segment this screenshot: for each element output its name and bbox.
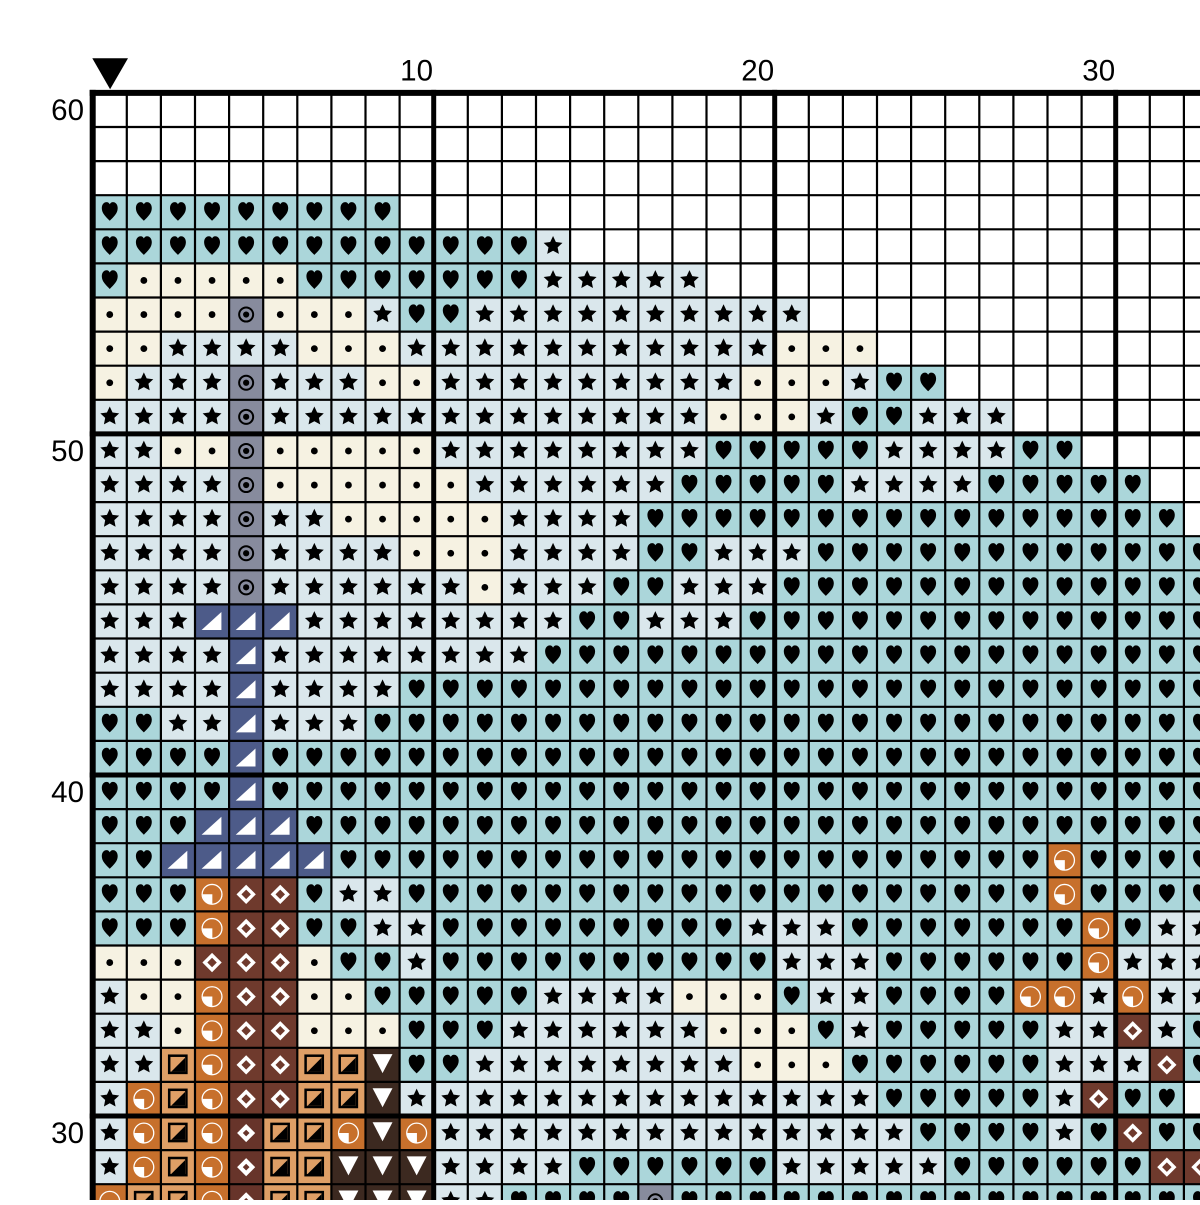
svg-text:60: 60 [51, 94, 84, 127]
svg-text:30: 30 [1082, 55, 1115, 88]
svg-text:20: 20 [741, 55, 774, 88]
svg-text:30: 30 [51, 1117, 84, 1150]
svg-text:40: 40 [51, 776, 84, 809]
svg-text:10: 10 [400, 55, 433, 88]
svg-text:50: 50 [51, 435, 84, 468]
